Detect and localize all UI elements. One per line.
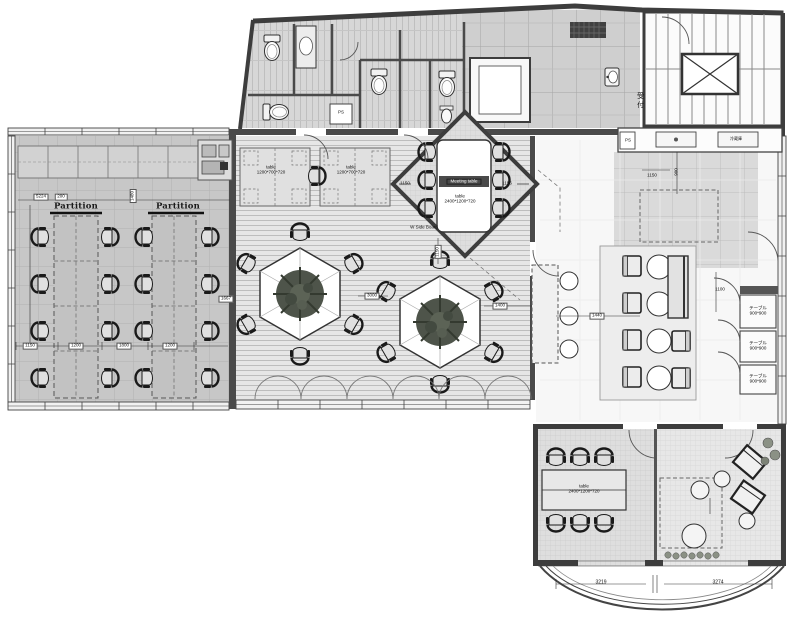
toilet-icon	[264, 35, 280, 61]
shower-pan	[479, 66, 521, 114]
booth-3-label: テーブル 900*900	[749, 374, 767, 383]
armchair-icon	[672, 331, 690, 351]
armchair-icon	[623, 256, 641, 276]
armchair-icon	[672, 368, 690, 388]
desk-island-2-label: table 1200*700*720	[337, 165, 366, 174]
booth-2-label: テーブル 900*900	[749, 341, 767, 350]
dim-meeting-w: 1150	[400, 182, 410, 187]
floor-plan-svg	[0, 0, 787, 636]
meeting-line2: 2400*1200*720	[444, 199, 475, 204]
sink-icon	[605, 68, 619, 86]
counter-table	[532, 265, 558, 363]
dim-1800: 1800	[116, 343, 131, 350]
dim-1100: 1100	[715, 288, 725, 293]
bay-dim-line	[556, 575, 772, 593]
reception-label: 受付	[636, 92, 643, 110]
dim-1150: 1150	[23, 343, 38, 350]
refrigerator-label: 冷蔵庫	[730, 137, 742, 141]
toilet-icon	[371, 69, 387, 95]
toilet-icon	[439, 71, 455, 97]
booth-1-label: テーブル 900*900	[749, 306, 767, 315]
dim-900: 900	[675, 168, 680, 176]
ps-label-2: PS	[625, 139, 631, 144]
partition-label-right: Partition	[156, 203, 200, 212]
copier-corner	[198, 140, 232, 180]
booth3-line2: 900*900	[749, 379, 767, 384]
pouf	[682, 524, 706, 548]
desk-island-1	[240, 148, 310, 206]
dim-1480: 1480	[130, 189, 137, 203]
armchair-icon	[623, 367, 641, 387]
round-table	[647, 329, 671, 353]
booth-wall	[740, 286, 778, 294]
dim-3274: 3274	[712, 580, 723, 585]
desk-island-2	[320, 148, 390, 206]
small-room-line2: 2400*1200*720	[568, 489, 599, 494]
desk2-line2: 1200*700*720	[337, 170, 366, 175]
booth1-line2: 900*900	[749, 311, 767, 316]
pouf	[691, 481, 709, 499]
dim-entry-w: 1150	[647, 174, 657, 179]
elevator-icon	[682, 54, 738, 94]
balcony-bay	[540, 566, 784, 610]
small-meeting-table-label: table 2400*1200*720	[568, 484, 599, 493]
dim-200: 200	[55, 194, 68, 201]
meeting-table-band-label: Meeting table	[446, 178, 481, 185]
office-bottom-window	[8, 402, 229, 410]
dim-1200b: 1200	[162, 343, 177, 350]
partition-label-left: Partition	[54, 203, 98, 212]
floor-plan: Partition Partition 5224 200 1150 1200 1…	[0, 0, 787, 636]
dim-1440: 1440	[589, 313, 604, 320]
dim-5224: 5224	[33, 194, 48, 201]
armchair-icon	[623, 293, 641, 313]
meeting-table-size: table 2400*1200*720	[444, 194, 475, 203]
pouf	[714, 471, 730, 487]
round-table	[647, 366, 671, 390]
dim-3000: 3000	[364, 293, 379, 300]
office-left-window	[8, 136, 15, 402]
stool	[560, 272, 578, 290]
dim-1667: 1667	[218, 296, 233, 303]
dim-1400: 1400	[492, 303, 507, 310]
desk1-line2: 1200*700*720	[257, 170, 286, 175]
stool	[560, 340, 578, 358]
toilet-icon	[263, 104, 289, 120]
armchair-icon	[623, 330, 641, 350]
side-board-note: W Side Board	[410, 226, 438, 231]
office-top-window	[8, 128, 229, 135]
right-window	[778, 136, 786, 424]
dim-3219: 3219	[595, 580, 606, 585]
ps-label-1: PS	[338, 111, 344, 116]
desk-island-1-label: table 1200*700*720	[257, 165, 286, 174]
dim-meeting-e: 1156	[502, 182, 512, 187]
vanity-sink	[296, 26, 316, 68]
dim-1200a: 1200	[68, 343, 83, 350]
pouf	[739, 513, 755, 529]
center-bottom-window	[236, 400, 530, 409]
bench-sofa	[668, 256, 688, 318]
entrance-mat	[570, 22, 606, 38]
booth2-line2: 900*900	[749, 346, 767, 351]
dim-1150-v: 1150	[435, 245, 442, 259]
